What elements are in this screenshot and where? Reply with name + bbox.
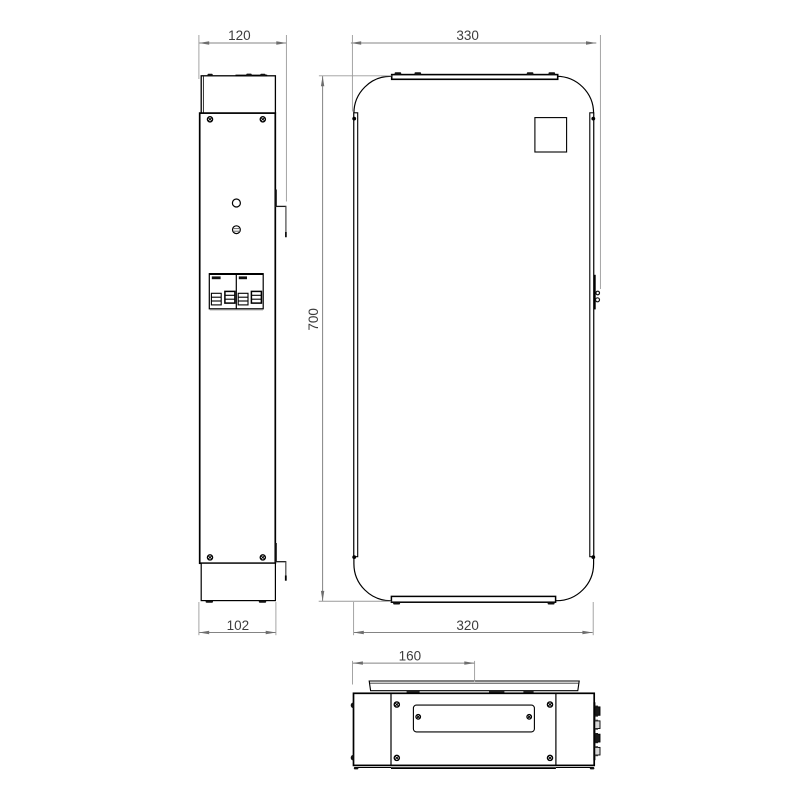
svg-text:120: 120 [228, 28, 251, 43]
svg-text:160: 160 [399, 649, 422, 664]
svg-text:330: 330 [456, 28, 479, 43]
svg-text:102: 102 [227, 618, 250, 633]
svg-text:320: 320 [456, 618, 479, 633]
svg-text:700: 700 [306, 308, 321, 331]
